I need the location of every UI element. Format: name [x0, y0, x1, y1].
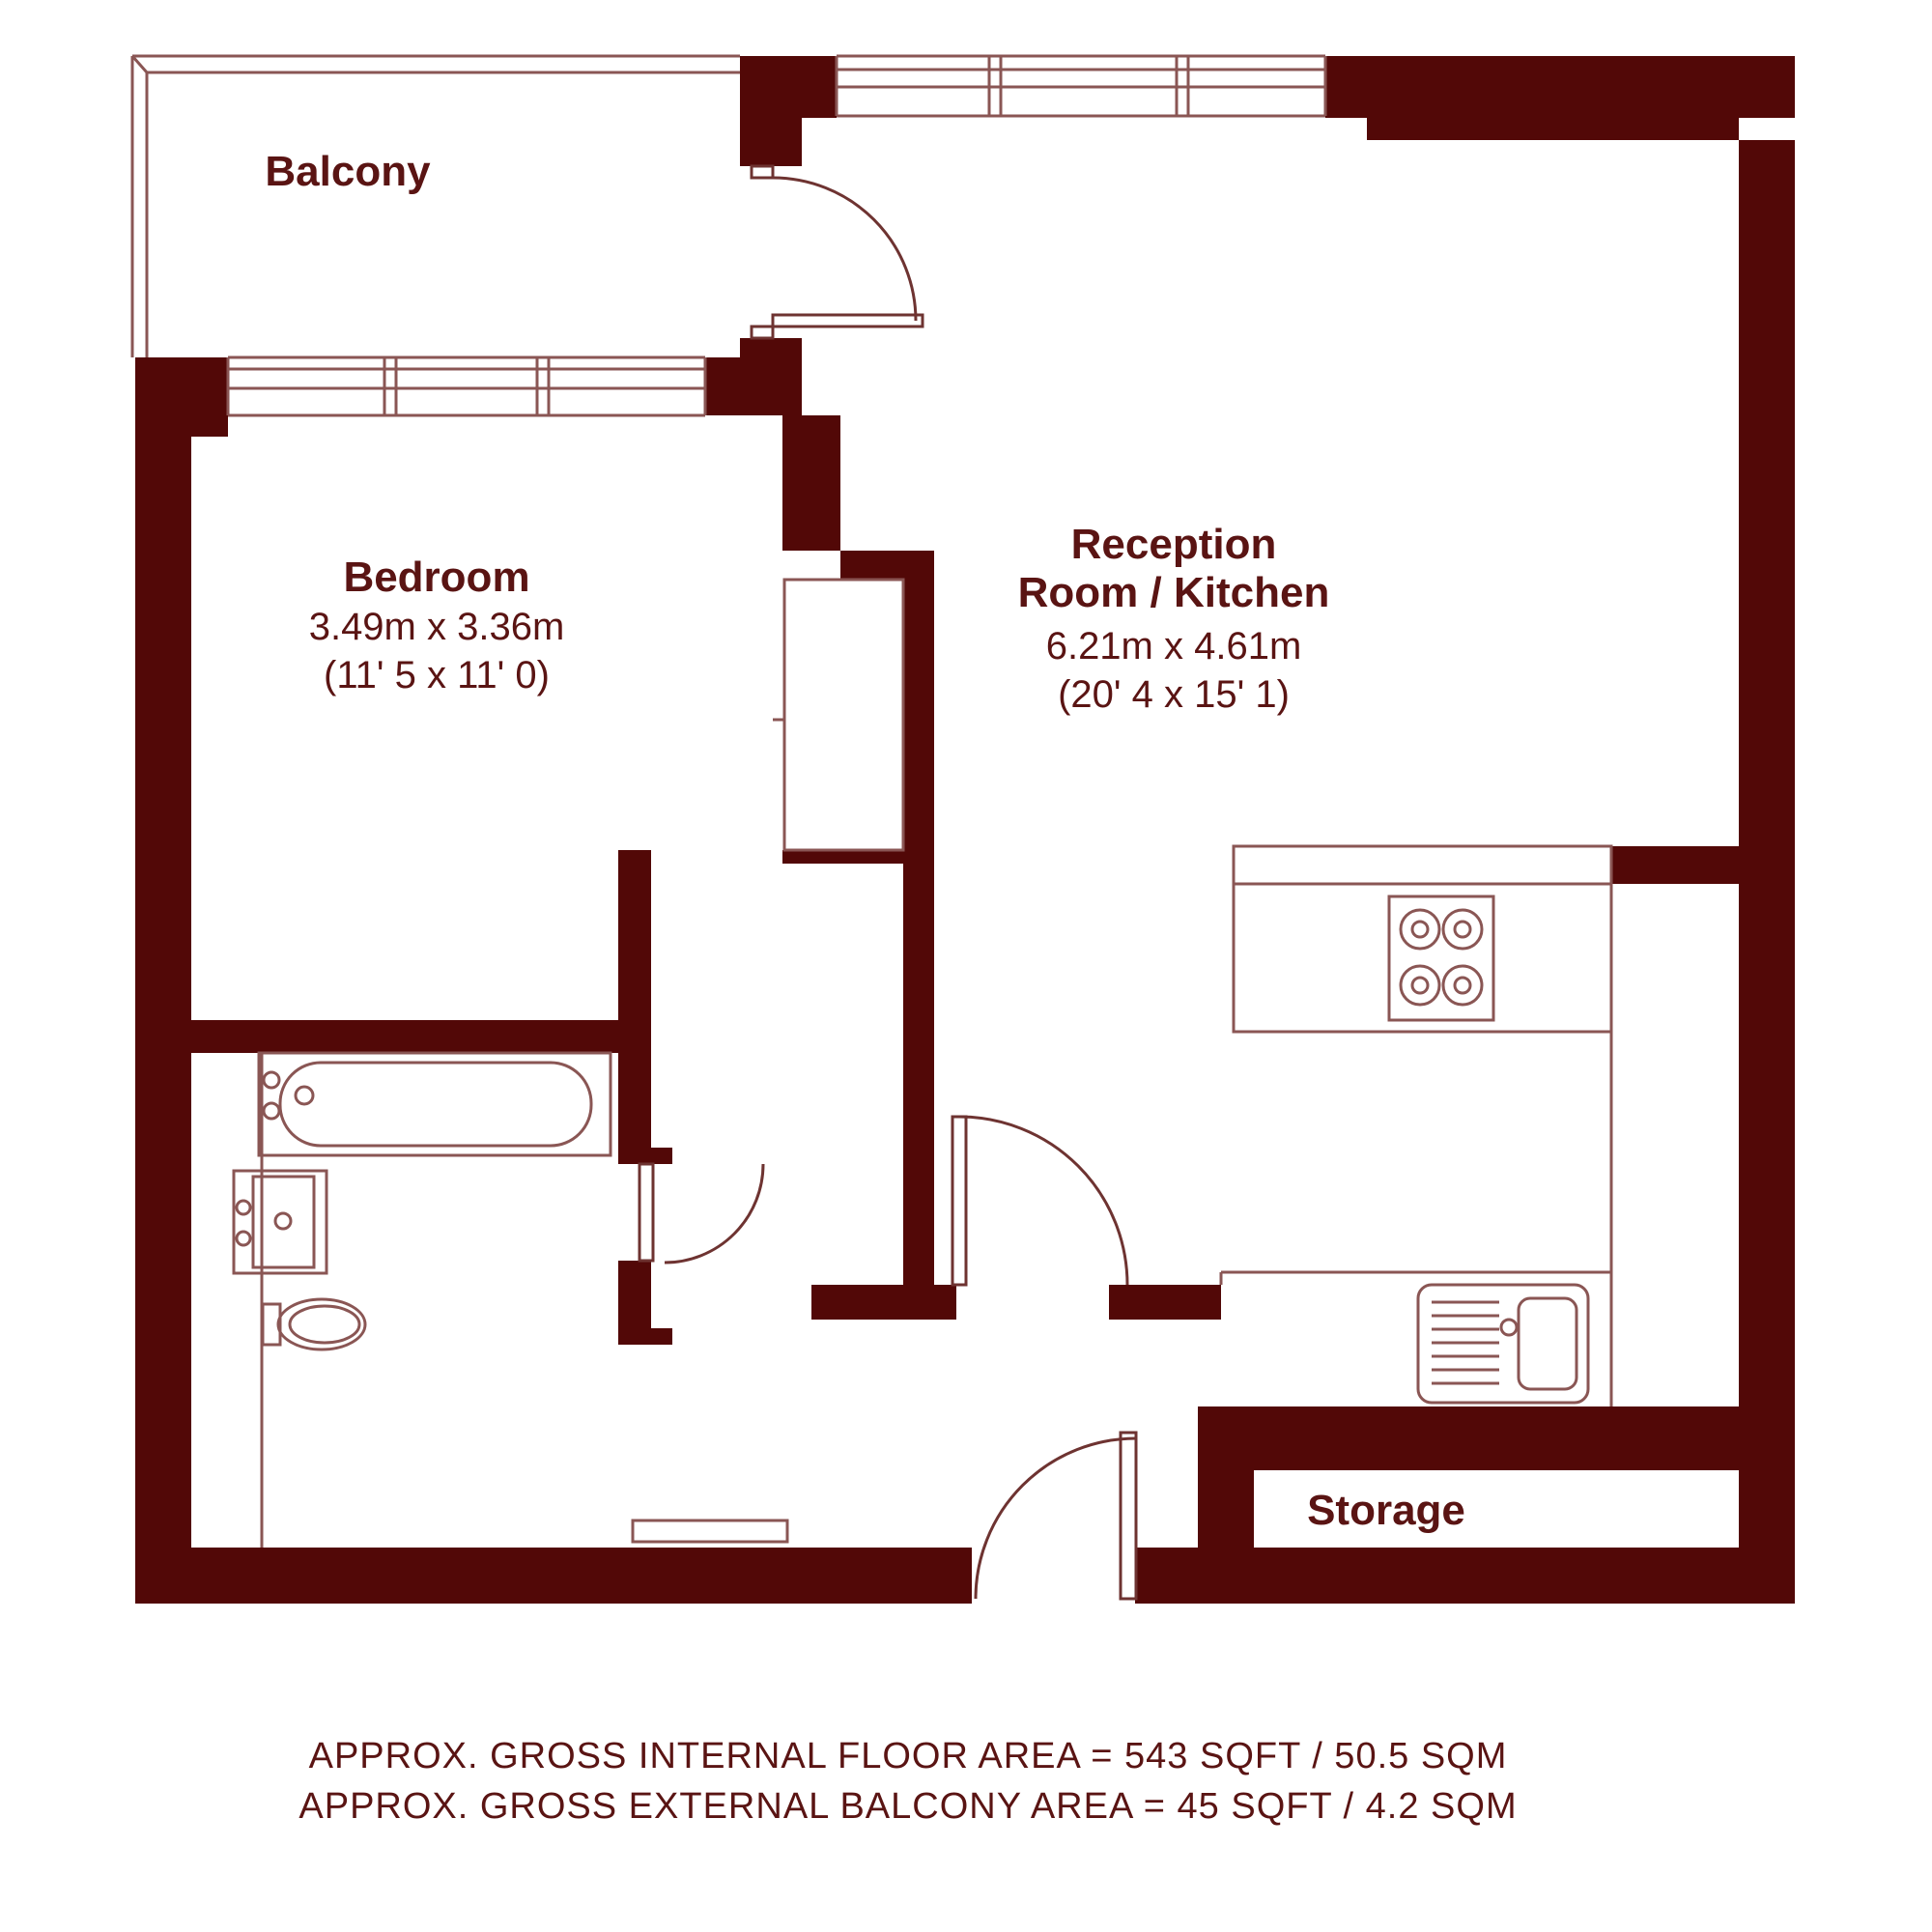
- door-swing-arc: [959, 1117, 1127, 1285]
- hob: [1389, 896, 1493, 1020]
- wall-storage-top: [1198, 1406, 1739, 1470]
- front-door: [976, 1433, 1136, 1599]
- wall-balcony-left-block: [135, 357, 228, 437]
- wall-top-divider-a: [740, 56, 837, 118]
- toilet: [263, 1299, 365, 1350]
- balcony-railing: [132, 56, 740, 357]
- door-swing-arc: [665, 1164, 763, 1263]
- door-leaf: [1121, 1433, 1136, 1599]
- door-leaf: [773, 315, 923, 327]
- reception-label-line1: Reception: [1071, 521, 1277, 568]
- storage-label: Storage: [1307, 1487, 1465, 1534]
- door-jamb: [752, 327, 773, 338]
- wall-bathroom-east-lower: [618, 1261, 651, 1345]
- wall-left-exterior: [135, 357, 191, 1604]
- wall-top-divider-c: [740, 338, 802, 415]
- footer: APPROX. GROSS INTERNAL FLOOR AREA = 543 …: [298, 1736, 1517, 1827]
- wall-jog-b: [651, 1328, 672, 1345]
- walls: [135, 56, 1795, 1604]
- door-leaf: [639, 1164, 653, 1261]
- door-leaf: [952, 1117, 966, 1285]
- bathroom-door: [639, 1164, 763, 1263]
- kitchen-sink: [1418, 1285, 1588, 1403]
- wall-hall-south-2: [1109, 1285, 1221, 1320]
- hall-threshold: [633, 1520, 787, 1542]
- wall-wardrobe-bottom: [782, 850, 903, 864]
- kitchen-counter: [1221, 846, 1611, 1406]
- reception-window: [837, 56, 1325, 116]
- door-swing-arc: [976, 1438, 1136, 1599]
- footer-balcony-area: APPROX. GROSS EXTERNAL BALCONY AREA = 45…: [298, 1786, 1517, 1827]
- bedroom-label: Bedroom: [343, 554, 529, 601]
- footer-internal-area: APPROX. GROSS INTERNAL FLOOR AREA = 543 …: [309, 1736, 1508, 1776]
- reception-label-line2: Room / Kitchen: [1018, 569, 1330, 616]
- bedroom-size-imperial: (11' 5 x 11' 0): [324, 654, 550, 696]
- balcony-label: Balcony: [265, 148, 431, 195]
- wall-hall-south-1: [811, 1285, 956, 1320]
- wall-bathroom-north: [191, 1020, 618, 1053]
- wall-storage-west: [1198, 1470, 1254, 1548]
- wall-bottom-right: [1135, 1548, 1795, 1604]
- wall-kitchen-stub: [1611, 846, 1739, 884]
- wall-bedroom-east-upper: [782, 415, 840, 551]
- floor-plan: Balcony Bedroom 3.49m x 3.36m (11' 5 x 1…: [0, 0, 1932, 1932]
- bath: [259, 1053, 611, 1155]
- bedroom-window: [228, 357, 705, 415]
- wall-hall-reception: [903, 551, 934, 1285]
- wall-bottom-left: [135, 1548, 972, 1604]
- floor-plan-page: Balcony Bedroom 3.49m x 3.36m (11' 5 x 1…: [0, 0, 1932, 1932]
- wall-jog-a: [651, 1148, 672, 1164]
- wall-top-divider-b: [740, 118, 802, 166]
- bathroom-fixtures: [234, 1053, 611, 1548]
- balcony-door: [752, 166, 923, 338]
- door-swing-arc: [773, 178, 916, 321]
- wardrobe-niche: [773, 580, 903, 850]
- wall-bathroom-east-upper: [618, 850, 651, 1164]
- wall-top-right-step: [1367, 118, 1739, 140]
- reception-size-metric: 6.21m x 4.61m: [1046, 625, 1302, 668]
- bedroom-size-metric: 3.49m x 3.36m: [309, 606, 565, 648]
- bathroom-sink: [234, 1171, 327, 1273]
- reception-door: [952, 1117, 1127, 1285]
- reception-size-imperial: (20' 4 x 15' 1): [1058, 673, 1290, 716]
- door-jamb: [752, 166, 773, 178]
- wall-top-right-exterior: [1325, 56, 1795, 118]
- wall-right-exterior: [1739, 140, 1795, 1604]
